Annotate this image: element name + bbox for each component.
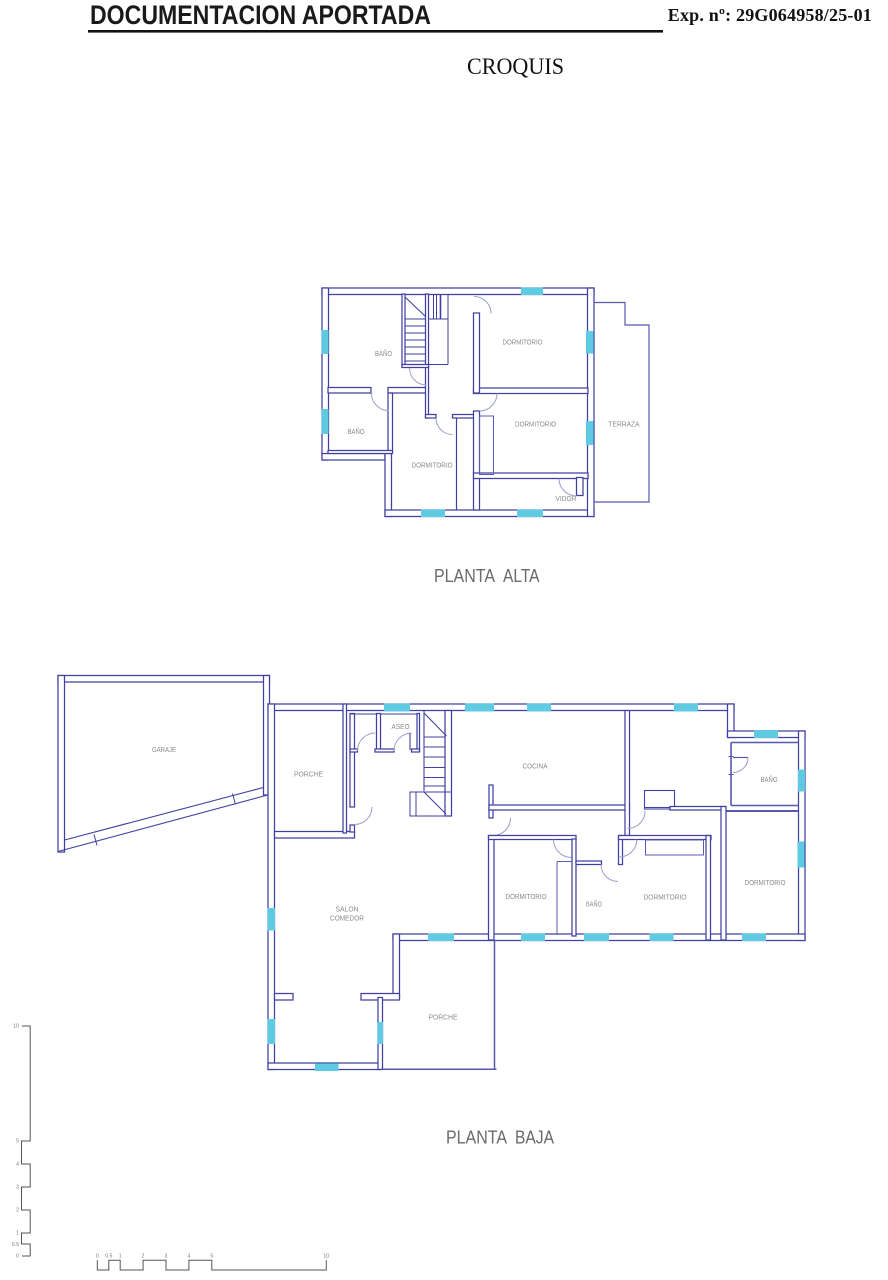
svg-text:2: 2: [16, 1208, 19, 1214]
svg-text:BAÑO: BAÑO: [348, 427, 365, 436]
svg-text:3: 3: [165, 1254, 168, 1260]
svg-text:4: 4: [16, 1162, 19, 1168]
svg-text:0.5: 0.5: [105, 1254, 112, 1260]
svg-text:PLANTA: PLANTA: [446, 1127, 508, 1148]
svg-text:DORMITORIO: DORMITORIO: [412, 463, 453, 470]
svg-text:0.5: 0.5: [12, 1242, 19, 1248]
svg-text:TERRAZA: TERRAZA: [609, 422, 640, 429]
svg-text:0: 0: [96, 1254, 99, 1260]
svg-text:VIDOR: VIDOR: [556, 496, 577, 503]
svg-text:10: 10: [13, 1024, 19, 1030]
svg-text:BAÑO: BAÑO: [375, 349, 392, 358]
svg-text:SALON: SALON: [336, 907, 359, 914]
svg-text:5: 5: [16, 1139, 19, 1145]
svg-text:3: 3: [16, 1185, 19, 1191]
svg-text:COMEDOR: COMEDOR: [330, 916, 364, 923]
svg-text:ASEO: ASEO: [392, 724, 411, 731]
svg-text:PLANTA: PLANTA: [434, 565, 496, 586]
svg-text:DORMITORIO: DORMITORIO: [515, 422, 556, 429]
svg-text:1: 1: [119, 1254, 122, 1260]
svg-text:GARAJE: GARAJE: [152, 747, 176, 754]
svg-text:DORMITORIO: DORMITORIO: [503, 340, 543, 347]
svg-text:DORMITORIO: DORMITORIO: [644, 895, 688, 902]
svg-text:0: 0: [16, 1254, 19, 1260]
svg-text:5: 5: [210, 1254, 213, 1260]
svg-text:ALTA: ALTA: [503, 565, 540, 586]
svg-text:1: 1: [16, 1231, 19, 1237]
svg-text:COCINA: COCINA: [523, 764, 548, 771]
svg-text:DORMITORIO: DORMITORIO: [745, 880, 786, 887]
svg-text:DORMITORIO: DORMITORIO: [506, 894, 547, 901]
svg-text:4: 4: [187, 1254, 190, 1260]
svg-text:BAJA: BAJA: [515, 1127, 555, 1148]
svg-text:PORCHE: PORCHE: [294, 772, 323, 779]
svg-text:2: 2: [142, 1254, 145, 1260]
svg-text:Exp. nº: 29G064958/25-01: Exp. nº: 29G064958/25-01: [668, 5, 872, 25]
svg-text:BAÑO: BAÑO: [586, 900, 602, 909]
svg-text:10: 10: [323, 1254, 329, 1260]
svg-text:BAÑO: BAÑO: [761, 775, 778, 784]
svg-text:CROQUIS: CROQUIS: [467, 54, 564, 79]
svg-text:PORCHE: PORCHE: [429, 1015, 458, 1022]
svg-text:DOCUMENTACION APORTADA: DOCUMENTACION APORTADA: [90, 0, 431, 30]
